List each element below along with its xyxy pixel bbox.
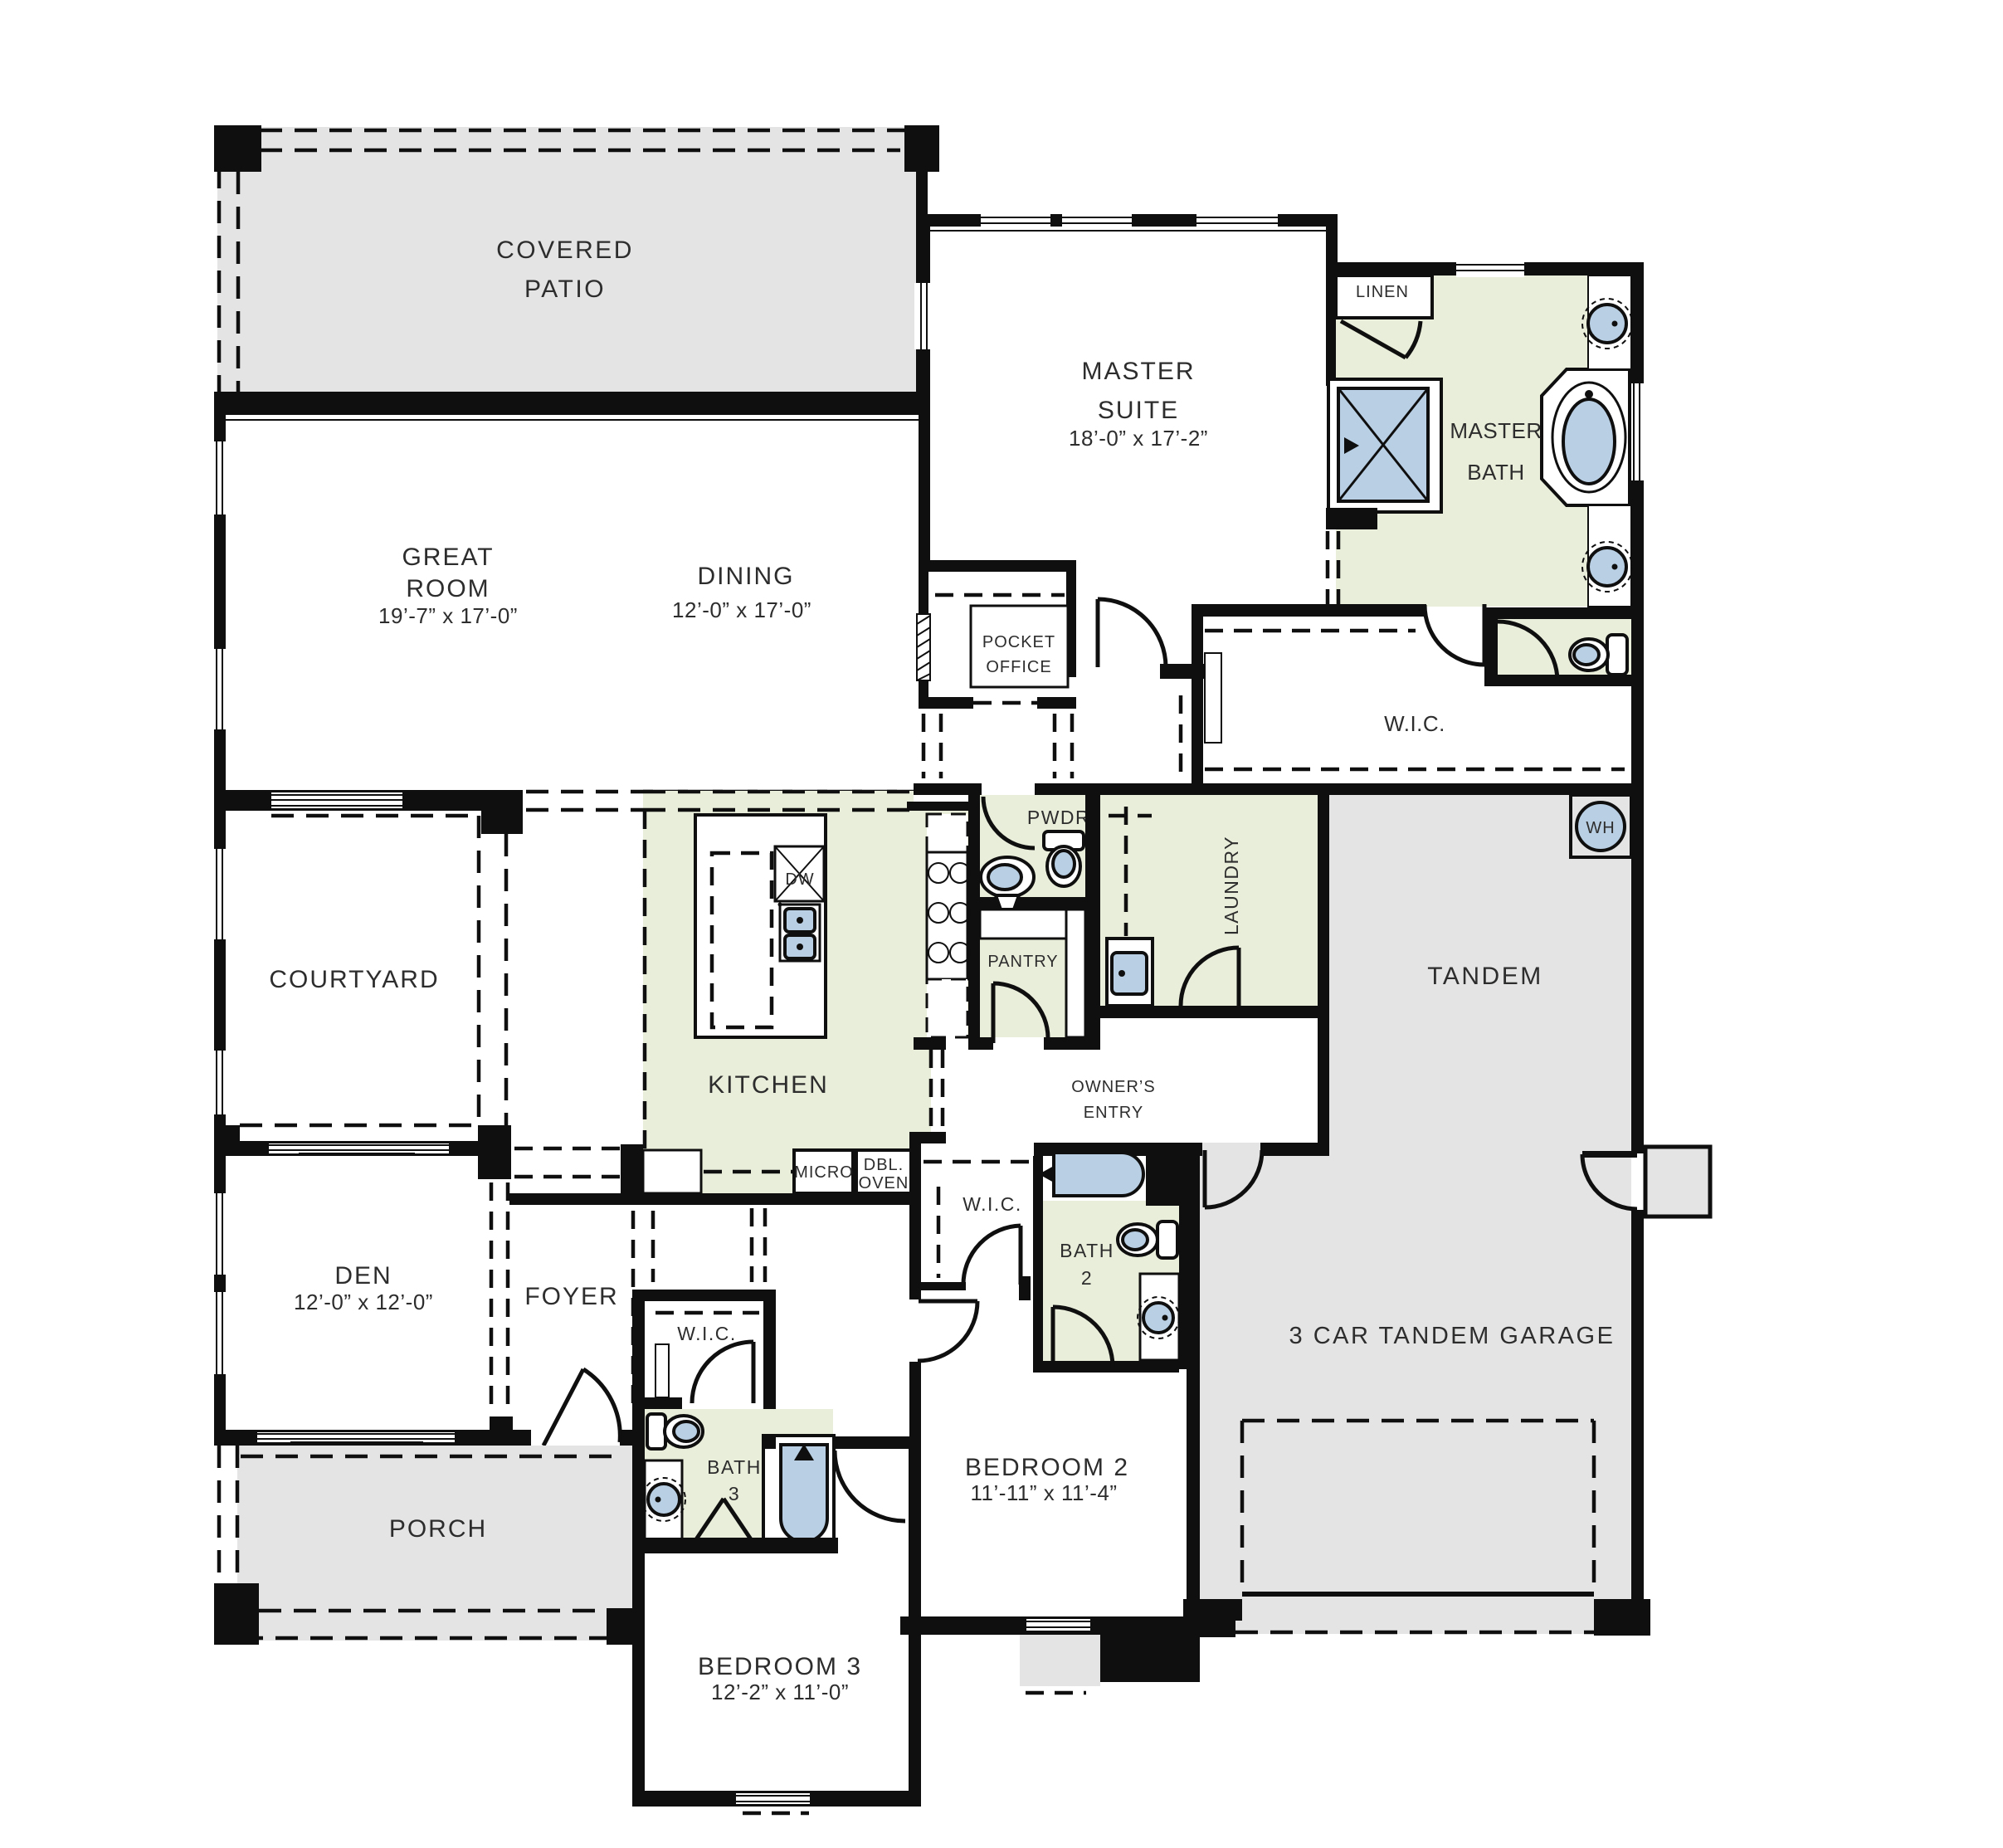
svg-text:DEN: DEN: [334, 1262, 392, 1290]
svg-text:W.I.C.: W.I.C.: [963, 1193, 1022, 1215]
svg-text:12’-2” x 11’-0”: 12’-2” x 11’-0”: [711, 1680, 849, 1704]
svg-text:BATH: BATH: [1467, 460, 1524, 485]
svg-text:PANTRY: PANTRY: [987, 953, 1058, 971]
svg-text:COURTYARD: COURTYARD: [269, 966, 439, 993]
svg-text:BEDROOM 3: BEDROOM 3: [698, 1653, 862, 1680]
svg-text:19’-7” x 17’-0”: 19’-7” x 17’-0”: [378, 603, 518, 628]
svg-text:PATIO: PATIO: [524, 275, 606, 303]
svg-text:2: 2: [1081, 1267, 1093, 1289]
svg-text:SUITE: SUITE: [1098, 397, 1179, 424]
svg-text:W.I.C.: W.I.C.: [1384, 711, 1445, 736]
svg-text:11’-11” x 11’-4”: 11’-11” x 11’-4”: [970, 1480, 1117, 1505]
svg-text:DW: DW: [785, 870, 814, 889]
svg-text:COVERED: COVERED: [496, 236, 634, 264]
svg-text:OWNER’S: OWNER’S: [1071, 1078, 1155, 1096]
svg-text:18’-0” x 17’-2”: 18’-0” x 17’-2”: [1069, 426, 1208, 451]
svg-text:LINEN: LINEN: [1356, 283, 1409, 301]
svg-text:MASTER: MASTER: [1450, 418, 1542, 443]
svg-text:MASTER: MASTER: [1081, 358, 1195, 385]
svg-text:ROOM: ROOM: [406, 575, 490, 602]
svg-text:W.I.C.: W.I.C.: [677, 1323, 737, 1344]
svg-text:FOYER: FOYER: [524, 1283, 618, 1310]
svg-text:3 CAR TANDEM GARAGE: 3 CAR TANDEM GARAGE: [1289, 1323, 1616, 1349]
svg-text:ENTRY: ENTRY: [1084, 1104, 1143, 1122]
svg-text:POCKET: POCKET: [982, 633, 1055, 651]
svg-text:MICRO: MICRO: [794, 1163, 854, 1182]
svg-text:PWDR: PWDR: [1027, 807, 1090, 828]
svg-text:12’-0” x 17’-0”: 12’-0” x 17’-0”: [672, 597, 811, 622]
svg-text:DINING: DINING: [698, 563, 795, 590]
svg-text:OVEN: OVEN: [859, 1174, 909, 1192]
svg-text:PORCH: PORCH: [389, 1515, 487, 1543]
svg-text:BEDROOM 2: BEDROOM 2: [965, 1454, 1129, 1481]
svg-text:3: 3: [729, 1483, 740, 1504]
svg-text:12’-0” x 12’-0”: 12’-0” x 12’-0”: [294, 1290, 433, 1314]
svg-text:TANDEM: TANDEM: [1427, 963, 1542, 990]
svg-text:OFFICE: OFFICE: [986, 658, 1051, 676]
svg-text:DBL.: DBL.: [864, 1156, 904, 1174]
svg-text:BATH: BATH: [1060, 1240, 1114, 1261]
svg-text:KITCHEN: KITCHEN: [708, 1071, 829, 1099]
svg-text:WH: WH: [1586, 819, 1615, 837]
svg-text:BATH: BATH: [707, 1456, 762, 1478]
svg-text:LAUNDRY: LAUNDRY: [1221, 836, 1242, 935]
svg-text:GREAT: GREAT: [402, 544, 494, 571]
